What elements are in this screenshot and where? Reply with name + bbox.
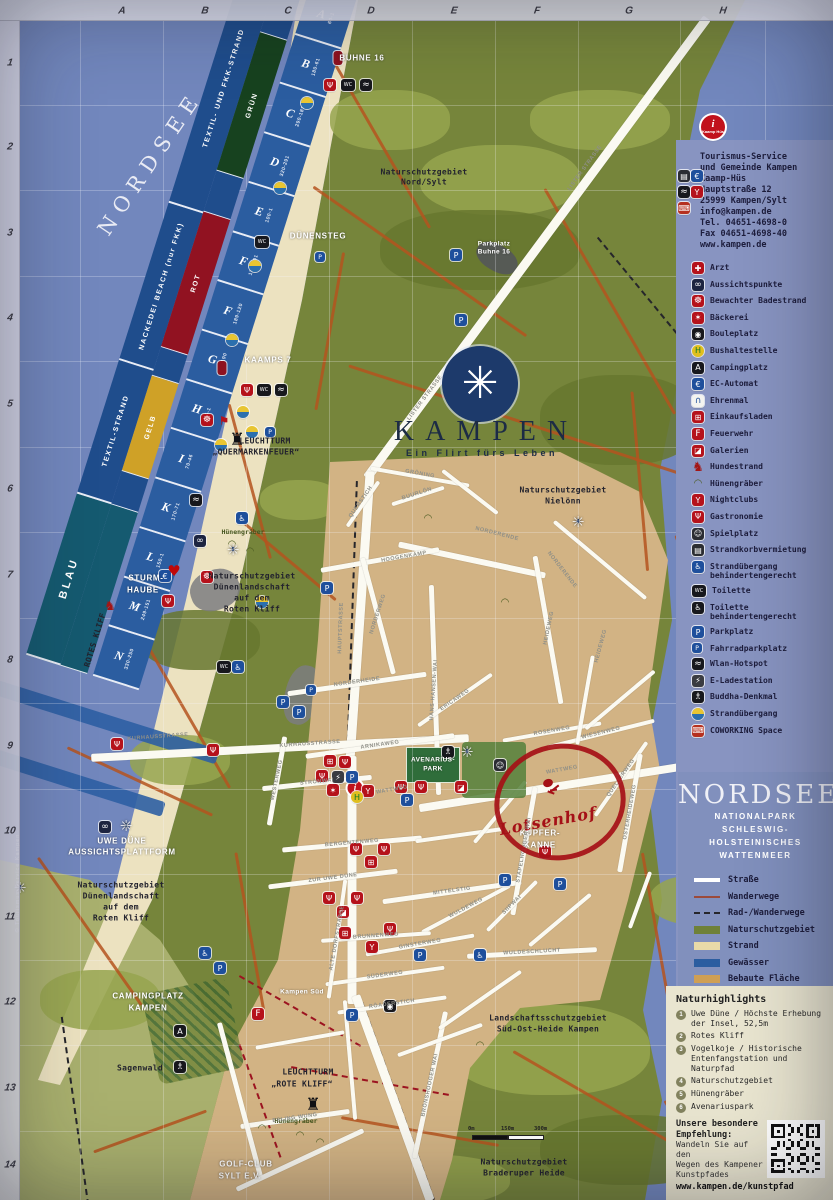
legend-label: Wlan-Hotspot (710, 658, 768, 669)
map-label: UWE DÜNE (97, 837, 146, 846)
map-label: Hünengräber (221, 528, 264, 536)
legend-item: €EC-Automat (692, 378, 832, 390)
map-label: LEUCHTTURM (282, 1068, 333, 1077)
coworking-icon: ⌨ (678, 202, 690, 214)
legend-label: Strandübergang (710, 708, 777, 719)
map-label: „ROTE KLIFF“ (271, 1080, 332, 1089)
map-label: Dünenlandschaft (214, 583, 291, 592)
legend-item: ♿Toilettebehindertengerecht (692, 602, 832, 622)
map-label: QUERSTICH (348, 485, 374, 519)
legend-label: Strandübergangbehindertengerecht (710, 561, 797, 581)
grid-row-label: 13 (4, 1083, 17, 1094)
ev-legend-icon: ⚡ (692, 675, 704, 687)
recommendation-line: Kunstpfades (676, 1170, 766, 1180)
grid-row-label: 1 (6, 58, 13, 69)
map-label: STRÖNWAI (300, 777, 334, 787)
legend-icon-wrap: ✚ (692, 262, 704, 274)
legend-icon-wrap: ♗ (692, 691, 704, 703)
map-label: ROSENWEG (533, 725, 571, 737)
f-legend-icon: F (692, 428, 704, 440)
qr-cell (788, 1133, 791, 1136)
map-label: BERGENTENWEG (325, 838, 380, 849)
map-label: Süd-Ost-Heide Kampen (497, 1025, 599, 1034)
recommendation-line: Wandeln Sie auf den (676, 1140, 766, 1160)
qr-cell (803, 1147, 806, 1150)
qr-cell (817, 1147, 820, 1150)
qr-cell (817, 1153, 820, 1156)
map-label: HEIDEWEG (542, 611, 555, 646)
grid-row-label: 5 (6, 399, 13, 410)
naturhighlights-panel: Naturhighlights 1Uwe Düne / Höchste Erhe… (666, 986, 833, 1200)
legend-label: Aussichtspunkte (710, 279, 782, 290)
legend-icon-wrap: P (692, 626, 704, 638)
map-label: Parkplatz (478, 241, 511, 248)
p-legend-icon: P (692, 626, 704, 638)
grid-col-label: G (624, 6, 633, 17)
map-label: AVENARIUS- (411, 757, 455, 764)
contact-line: Hauptstraße 12 (700, 185, 830, 196)
wifi-icon: ≈ (678, 186, 690, 198)
qr-cell (791, 1159, 794, 1162)
map-label: KURHAUSSTRASSE (279, 739, 340, 749)
contact-line: Tel. 04651-4698-0 (700, 218, 830, 229)
qr-cell (817, 1136, 820, 1139)
legend-icon-wrap: ∩ (692, 395, 704, 407)
kampen-wordmark: KAMPEN (394, 416, 578, 448)
legend-item: ΨGastronomie (692, 511, 832, 523)
map-label: WESTERWEG (270, 759, 285, 801)
grid-col-label: C (283, 6, 292, 17)
naturhighlights-list: 1Uwe Düne / Höchste Erhebung der Insel, … (676, 1009, 827, 1113)
grid-col-label: H (718, 6, 727, 17)
legend-icon-wrap: A (692, 362, 704, 374)
qr-cell (788, 1162, 791, 1165)
map-label: auf dem (103, 903, 139, 912)
map-label: HOOGENKAMP (381, 550, 427, 564)
legend-label: Hundestrand (710, 461, 763, 472)
map-label: LISTER STRASSE (406, 374, 444, 421)
map-label: NORDERENDE (546, 551, 578, 590)
map-label: SÜDERWEG (366, 969, 403, 980)
map-label: AUSSICHTSPLATTFORM (68, 848, 176, 857)
contact-line: Kaamp-Hüs (700, 174, 830, 185)
legend-item: ◠Hünengräber (692, 478, 832, 490)
aussicht-legend-icon: ∞ (692, 279, 704, 291)
legend-label-line2: behindertengerecht (710, 571, 797, 581)
legend-item: ♿Strandübergangbehindertengerecht (692, 561, 832, 581)
highlight-number-badge: 5 (676, 1090, 686, 1100)
scale-bar-black (472, 1135, 508, 1140)
scale-label: 0m (468, 1126, 475, 1132)
wc-legend-icon: WC (692, 585, 706, 597)
map-label: GOLF-CLUB (219, 1160, 272, 1169)
map-label: Roten Kliff (224, 605, 280, 614)
map-label: Naturschutzgebiet (209, 572, 296, 581)
grid-row-label: 6 (6, 484, 13, 495)
legend-item: ⊞Einkaufsladen (692, 411, 832, 423)
legend-item: ACampingplatz (692, 362, 832, 374)
grid-row-label: 4 (6, 313, 13, 324)
naturhighlight-item: 3Vogelkoje / Historische Entenfangstatio… (676, 1044, 827, 1074)
ec-legend-icon: € (692, 378, 704, 390)
grid-row-header: 1234567891011121314 (0, 21, 20, 1200)
grid-row-label: 10 (4, 826, 17, 837)
grid-row-label: 2 (6, 142, 13, 153)
map-label: NORDERENDE (475, 526, 520, 543)
legend-item: ✚Arzt (692, 262, 832, 274)
highlight-number-badge: 1 (676, 1010, 686, 1020)
grid-row-label: 9 (6, 741, 13, 752)
map-label: BUHNE 16 (339, 54, 384, 63)
legend-item: ◪Galerien (692, 445, 832, 457)
scale-label: 150m (501, 1126, 514, 1132)
qr-cell (791, 1170, 794, 1173)
map-label: ZUR UWE DÜNE (308, 872, 358, 884)
map-label: DÜNENSTEG (290, 232, 347, 241)
map-label: Naturschutzgebiet (381, 168, 468, 177)
contact-line: 25999 Kampen/Sylt (700, 196, 830, 207)
play-legend-icon: ☺ (692, 528, 704, 540)
naturhighlight-item: 5Hünengräber (676, 1089, 827, 1100)
legend-icon-wrap: ☺ (692, 528, 704, 540)
highlight-text: Uwe Düne / Höchste Erhebung der Insel, 5… (691, 1009, 827, 1029)
highlight-text: Avenariuspark (691, 1102, 754, 1113)
kampen-logo: ✳ (442, 346, 518, 422)
contact-line: www.kampen.de (700, 240, 830, 251)
su-legend-icon (692, 708, 704, 720)
boule-legend-icon: ◉ (692, 328, 704, 340)
legend-item: ◉Bouleplatz (692, 328, 832, 340)
legend-label: Fahrradparkplatz (710, 643, 787, 654)
contact-line: Fax 04651-4698-40 (700, 229, 830, 240)
legend-item: Strandübergang (692, 708, 832, 720)
qr-cell (800, 1124, 803, 1127)
legend-item: FFeuerwehr (692, 428, 832, 440)
map-label: WATTWEG (376, 784, 409, 795)
legend-item: ♗Buddha-Denkmal (692, 691, 832, 703)
legend-item: ✶Bäckerei (692, 312, 832, 324)
shop-legend-icon: ⊞ (692, 411, 704, 423)
legend-label: Bouleplatz (710, 328, 758, 339)
gastro-legend-icon: Ψ (692, 511, 704, 523)
pr-legend-icon: P (692, 643, 702, 653)
legend-icon-wrap: ♞ (692, 461, 704, 473)
map-label: Braderuper Heide (483, 1169, 565, 1178)
qr-code (767, 1120, 825, 1178)
legend-icon-wrap: P (692, 643, 704, 653)
scale-bar: 0m150m300m (468, 1126, 548, 1142)
legend-label: Spielplatz (710, 528, 758, 539)
map-label: BUURLÖN (401, 486, 433, 501)
recommendation: Unsere besondere Empfehlung:Wandeln Sie … (676, 1119, 766, 1180)
recommendation-title: Unsere besondere Empfehlung: (676, 1119, 766, 1140)
map-label: ALTE DORFSTRASSE (328, 905, 345, 971)
highlight-number-badge: 3 (676, 1045, 686, 1055)
qr-cell (803, 1162, 806, 1165)
legend-label: Feuerwehr (710, 428, 753, 439)
legend-icon-wrap: ✶ (692, 312, 704, 324)
legend-icon-wrap: € (692, 378, 704, 390)
legend-label: EC-Automat (710, 378, 758, 389)
map-label: STURM- (128, 574, 163, 583)
map-label: WULDEWEG (448, 897, 484, 920)
naturhighlight-item: 4Naturschutzgebiet (676, 1076, 827, 1087)
legend-item: ⌨COWORKING Space (692, 725, 832, 737)
legend-icon-wrap: ▤ (692, 544, 704, 556)
map-label: WULDESCHLUCHT (503, 947, 561, 956)
qr-cell (797, 1170, 800, 1173)
highlight-text: Rotes Kliff (691, 1031, 744, 1042)
naturhighlight-item: 2Rotes Kliff (676, 1031, 827, 1042)
legend-label: Campingplatz (710, 362, 768, 373)
map-label: Kampen Süd (280, 989, 324, 996)
legend-item: HBushaltestelle (692, 345, 832, 357)
qr-cell (783, 1136, 786, 1139)
legend-icon-wrap: WC (692, 585, 706, 597)
qr-cell (774, 1147, 777, 1150)
qr-cell (777, 1165, 780, 1168)
map-label: auf dem (234, 594, 270, 603)
legend-icon-wrap: ◪ (692, 445, 704, 457)
grid-row-label: 3 (6, 228, 13, 239)
legend-icon-wrap: ≈ (692, 658, 704, 670)
map-label: NORDERHEIDE (333, 676, 380, 688)
wheelk-legend-icon: ♿ (692, 602, 704, 614)
qr-cell (791, 1144, 794, 1147)
qr-cell (812, 1130, 815, 1133)
grid-col-label: F (533, 6, 541, 17)
map-label: HAUPTSTRASSE (337, 602, 345, 654)
legend-label: Buddha-Denkmal (710, 691, 777, 702)
legend-icon-wrap: ◠ (692, 478, 704, 490)
qr-cell (806, 1170, 809, 1173)
grid-col-label: A (117, 6, 126, 17)
recommendation-line: Wegen des Kampener (676, 1160, 766, 1170)
grid-row-label: 14 (4, 1160, 17, 1171)
map-label: HAUBE (127, 586, 159, 595)
legend-icon-wrap: F (692, 428, 704, 440)
legend-label: Bäckerei (710, 312, 749, 323)
qr-cell (800, 1133, 803, 1136)
qr-cell (788, 1147, 791, 1150)
legend-item: ∩Ehrenmal (692, 395, 832, 407)
buddha-legend-icon: ♗ (692, 691, 704, 703)
legend-label: Gastronomie (710, 511, 763, 522)
legend-label: Galerien (710, 445, 749, 456)
highlight-text: Hünengräber (691, 1089, 744, 1100)
qr-cell (812, 1170, 815, 1173)
map-label: Naturschutzgebiet (520, 486, 607, 495)
snowflake-icon: ✳ (462, 362, 499, 406)
map-label: Nielönn (545, 497, 581, 506)
gal-legend-icon: ◪ (692, 445, 704, 457)
legend-icon-wrap: ⊞ (692, 411, 704, 423)
night-legend-icon: Y (692, 494, 704, 506)
legend-icon-wrap: ⌨ (692, 725, 704, 737)
legend-item: PFahrradparkplatz (692, 643, 832, 654)
legend-label: Nightclubs (710, 494, 758, 505)
map-label: Buhne 16 (478, 249, 510, 256)
legend-label: Arzt (710, 262, 729, 273)
grid-col-label: B (200, 6, 209, 17)
arrow-stroke (550, 789, 557, 792)
legend-item: PParkplatz (692, 626, 832, 638)
map-label: WIESENWEG (581, 725, 621, 740)
camp-legend-icon: A (692, 362, 704, 374)
map-label: SIIPWAI (501, 894, 523, 916)
qr-cell (817, 1162, 820, 1165)
dog-legend-icon: ♞ (692, 461, 704, 473)
legend-label: Toilette (712, 585, 751, 596)
map-label: ROTES KLIFF (82, 612, 107, 668)
highlight-number-badge: 6 (676, 1103, 686, 1113)
map-label: GINSTERWEG (398, 937, 441, 950)
legend-icon-wrap: Y (692, 494, 704, 506)
legend-icon-wrap: ⚡ (692, 675, 704, 687)
poi-legend: ✚Arzt∞Aussichtspunkte☸Bewachter Badestra… (692, 262, 832, 741)
legend-item: ∞Aussichtspunkte (692, 279, 832, 291)
naturhighlight-item: 1Uwe Düne / Höchste Erhebung der Insel, … (676, 1009, 827, 1029)
legend-label: Einkaufsladen (710, 411, 773, 422)
qr-cell (791, 1130, 794, 1133)
strandkorb-icon: ▤ (678, 170, 690, 182)
cowork-legend-icon: ⌨ (692, 725, 704, 737)
map-label: KAMPEN (129, 1004, 168, 1013)
legend-label: Toilettebehindertengerecht (710, 602, 797, 622)
tourist-info-contact: Tourismus-Serviceund Gemeinde KampenKaam… (700, 152, 830, 251)
handdrawn-arrow (548, 788, 564, 804)
map-label: MITTELSTIG (433, 885, 472, 896)
grid-row-label: 12 (4, 997, 17, 1008)
legend-item: WCToilette (692, 585, 832, 597)
grid-col-label: D (366, 6, 375, 17)
qr-cell (800, 1139, 803, 1142)
map-label: PARK (423, 766, 443, 773)
highlight-text: Vogelkoje / Historische Entenfangstation… (691, 1044, 827, 1074)
map-label: Naturschutzgebiet (481, 1158, 568, 1167)
map-label: LISTER STRASSE (566, 144, 603, 192)
grid-row-label: 7 (6, 570, 13, 581)
map-label: BRÖNSHOOGER WAI (420, 1053, 439, 1117)
legend-icon-wrap: ☸ (692, 295, 704, 307)
legend-label: Bushaltestelle (710, 345, 777, 356)
life-legend-icon: ☸ (692, 295, 704, 307)
arzt-legend-icon: ✚ (692, 262, 704, 274)
map-label: NORDSEE (93, 86, 208, 240)
qr-cell (806, 1159, 809, 1162)
bus-legend-icon: H (692, 345, 704, 357)
qr-cell (783, 1170, 786, 1173)
map-label: CAMPINGPLATZ (112, 992, 183, 1001)
legend-icon-wrap: Ψ (692, 511, 704, 523)
qr-cell (777, 1144, 780, 1147)
map-label: GRÖNING (405, 468, 436, 479)
qr-cell (774, 1153, 777, 1156)
highlight-number-badge: 2 (676, 1032, 686, 1042)
ehren-legend-icon: ∩ (692, 395, 704, 407)
map-label: Nord/Sylt (401, 178, 447, 187)
wheel-legend-icon: ♿ (692, 561, 704, 573)
wifi-legend-icon: ≈ (692, 658, 704, 670)
map-label: LEUCHTTURM (239, 437, 290, 446)
legend-label-line2: behindertengerecht (710, 612, 797, 622)
naturhighlights-title: Naturhighlights (676, 994, 827, 1005)
legend-label: Parkplatz (710, 626, 753, 637)
map-label: NORDERWEG (369, 593, 388, 635)
bake-legend-icon: ✶ (692, 312, 704, 324)
legend-item: ☸Bewachter Badestrand (692, 295, 832, 307)
map-label: Dünenlandschaft (83, 892, 160, 901)
map-label: Landschaftsschutzgebiet (489, 1014, 607, 1023)
qr-cell (777, 1130, 780, 1133)
legend-item: ☺Spielplatz (692, 528, 832, 540)
highlight-text: Naturschutzgebiet (691, 1076, 773, 1087)
legend-item: ⚡E-Ladestation (692, 675, 832, 687)
legend-icon-wrap: ◉ (692, 328, 704, 340)
legend-label: E-Ladestation (710, 675, 773, 686)
legend-item: YNightclubs (692, 494, 832, 506)
legend-icon-wrap: H (692, 345, 704, 357)
highlight-number-badge: 4 (676, 1077, 686, 1087)
map-label: Sagenwald (117, 1064, 163, 1073)
qr-cell (817, 1168, 820, 1171)
scale-label: 300m (534, 1126, 547, 1132)
contact-line: und Gemeinde Kampen (700, 163, 830, 174)
map-label: HEIDEWEG (594, 629, 609, 664)
contact-line: Tourismus-Service (700, 152, 830, 163)
contact-line: info@kampen.de (700, 207, 830, 218)
grid-row-label: 8 (6, 655, 13, 666)
map-label: RÖADERSTICH (369, 998, 416, 1010)
legend-item: ▤Strandkorbvermietung (692, 544, 832, 556)
kampen-map: TEXTIL- UND FKK-STRANDNACKEDEI BEACH (nu… (0, 0, 833, 1200)
korb-legend-icon: ▤ (692, 544, 704, 556)
map-label: SYLT E.V. (219, 1172, 262, 1181)
legend-label: Ehrenmal (710, 395, 749, 406)
legend-label: Bewachter Badestrand (710, 295, 806, 306)
legend-item: ♞Hundestrand (692, 461, 832, 473)
kunstpfad-link[interactable]: www.kampen.de/kunstpfad (676, 1182, 794, 1192)
kampen-slogan: Ein Flirt fürs Leben (406, 448, 558, 458)
map-label: ERICAWEG (439, 688, 471, 713)
legend-icon-wrap: ∞ (692, 279, 704, 291)
map-label: KURHAUSSTRASSE (127, 732, 188, 742)
map-label: HANS-HANSEN-WAI (429, 659, 439, 720)
map-label: „QUERMARKENFEUER“ (213, 448, 300, 457)
grid-col-label: E (449, 6, 457, 17)
legend-label: COWORKING Space (710, 725, 782, 736)
map-label: Naturschutzgebiet (78, 881, 165, 890)
legend-icon-wrap: ♿ (692, 602, 704, 614)
hue-legend-icon: ◠ (692, 478, 704, 490)
legend-label: Hünengräber (710, 478, 763, 489)
legend-label: Strandkorbvermietung (710, 544, 806, 555)
legend-item: ≈Wlan-Hotspot (692, 658, 832, 670)
grid-column-header: ABCDEFGH (0, 0, 833, 21)
map-label: Roten Kliff (93, 914, 149, 923)
legend-icon-wrap: ♿ (692, 561, 704, 573)
nightclub-icon: Y (691, 186, 703, 198)
naturhighlight-item: 6Avenariuspark (676, 1102, 827, 1113)
map-label: BRUNNENWEG (353, 931, 399, 940)
map-label: ARNIKAWEG (360, 739, 400, 750)
qr-cell (806, 1144, 809, 1147)
grid-row-label: 11 (4, 912, 16, 923)
legend-icon-wrap (692, 708, 704, 720)
scale-bar-white (508, 1135, 544, 1140)
ec-icon: € (691, 170, 703, 182)
map-label: KAAMPS 7 (245, 356, 292, 365)
